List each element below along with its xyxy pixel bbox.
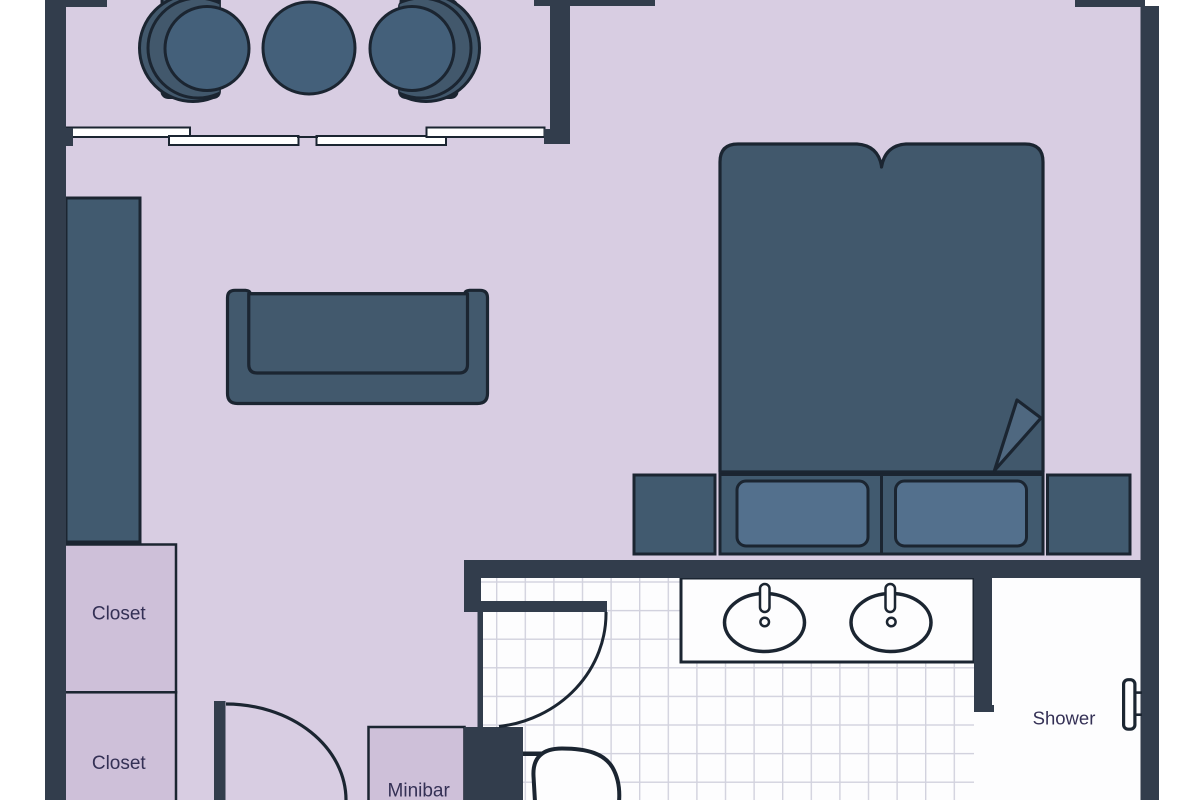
svg-text:Minibar: Minibar — [388, 781, 451, 800]
svg-text:Shower: Shower — [1033, 708, 1096, 729]
svg-text:Closet: Closet — [92, 604, 147, 625]
svg-text:Closet: Closet — [92, 753, 147, 774]
